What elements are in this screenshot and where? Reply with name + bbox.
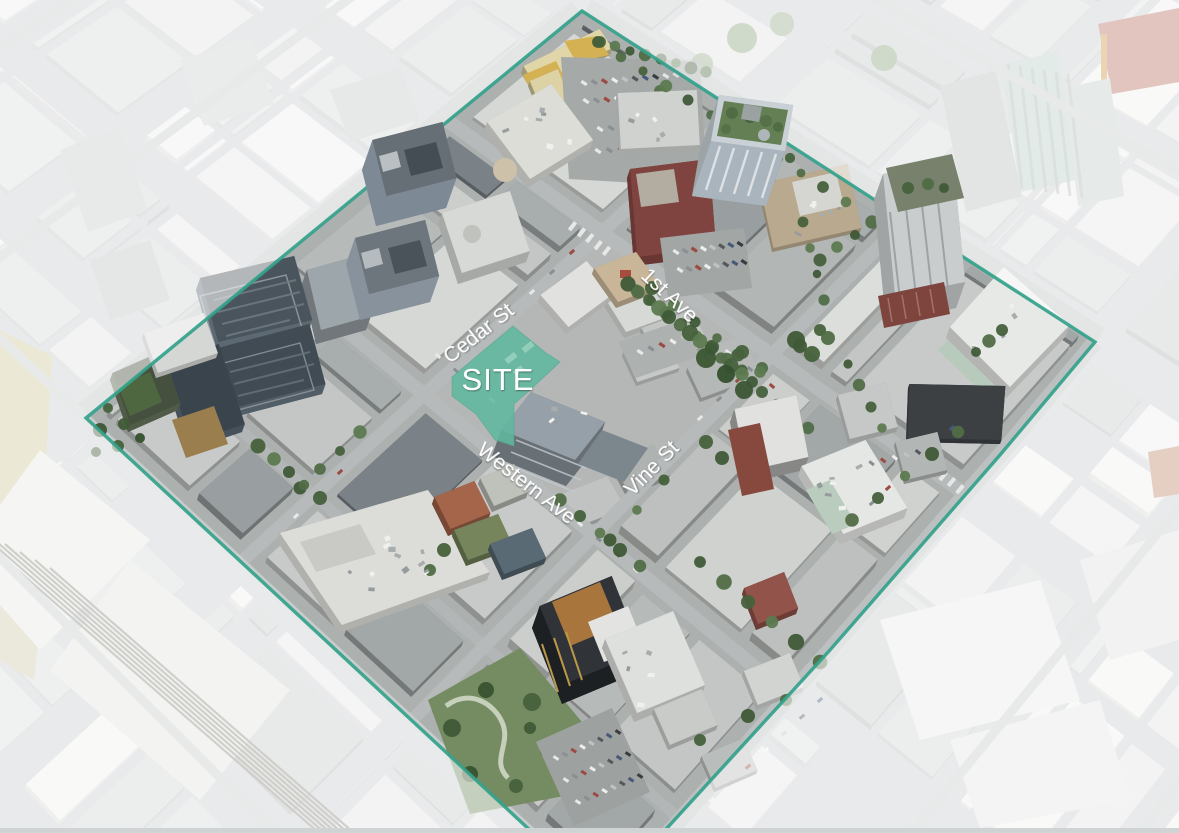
svg-text:SITE: SITE [462, 362, 535, 397]
